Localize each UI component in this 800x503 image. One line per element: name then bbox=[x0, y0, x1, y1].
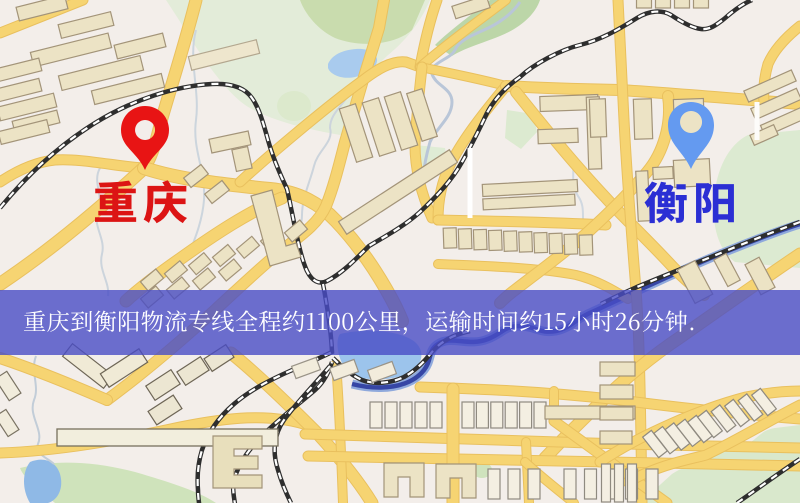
svg-text:衡阳: 衡阳 bbox=[644, 168, 742, 232]
svg-text:重庆到衡阳物流专线全程约1100公里，运输时间约15小时26: 重庆到衡阳物流专线全程约1100公里，运输时间约15小时26分钟. bbox=[23, 303, 696, 337]
svg-text:重庆: 重庆 bbox=[93, 167, 193, 232]
